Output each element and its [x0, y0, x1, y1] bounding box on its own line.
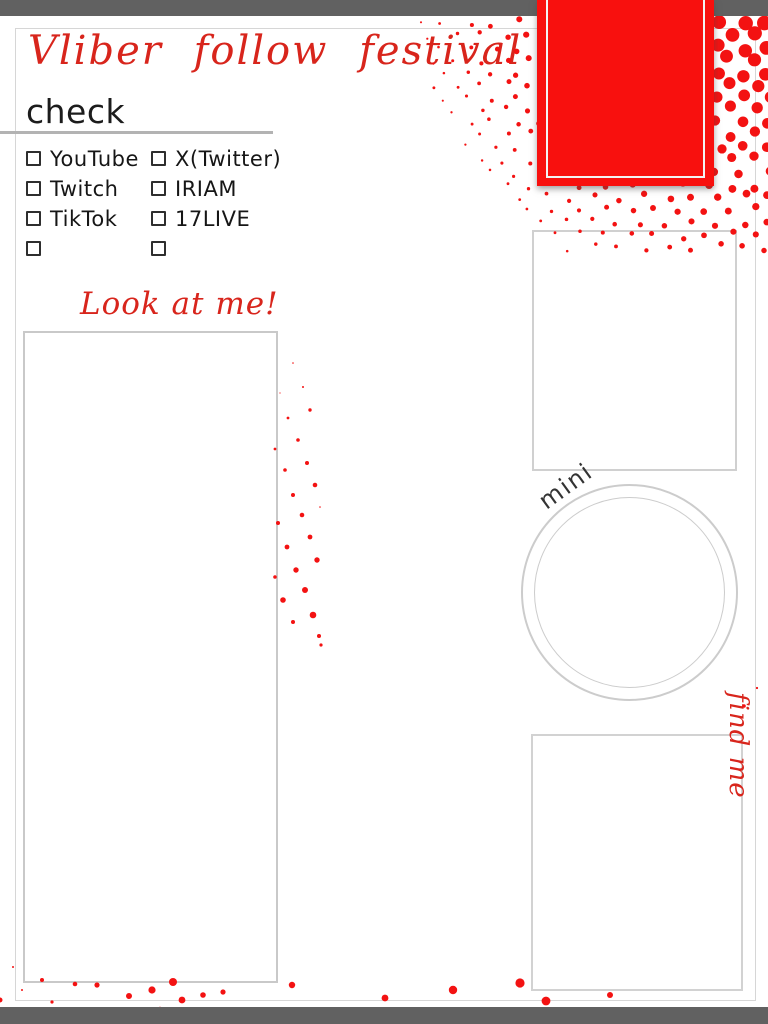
bottom-gray-bar — [0, 1007, 768, 1024]
photo-frame-top-right — [532, 230, 737, 471]
mini-photo-circle-inner — [534, 497, 725, 688]
check-heading: check — [26, 92, 125, 131]
main-photo-frame — [23, 331, 278, 983]
check-item-blank-right — [151, 237, 281, 267]
check-label-youtube: YouTube — [50, 147, 139, 171]
check-label-x-twitter: X(Twitter) — [175, 147, 281, 171]
checkbox-blank-right[interactable] — [151, 241, 166, 256]
red-card — [537, 0, 714, 186]
red-card-inner-border — [546, 0, 705, 178]
check-item-x-twitter: X(Twitter) — [151, 147, 281, 177]
page-title: Vliber follow festival — [28, 28, 522, 74]
find-me-caption: find me — [723, 692, 753, 799]
checkbox-x-twitter[interactable] — [151, 151, 166, 166]
photo-frame-bottom-right — [531, 734, 743, 991]
check-label-tiktok: TikTok — [50, 207, 117, 231]
check-item-iriam: IRIAM — [151, 177, 281, 207]
checkbox-iriam[interactable] — [151, 181, 166, 196]
look-at-me-caption: Look at me! — [80, 286, 279, 322]
check-item-twitch: Twitch — [26, 177, 151, 207]
check-item-blank-left — [26, 237, 151, 267]
checkbox-blank-left[interactable] — [26, 241, 41, 256]
check-label-twitch: Twitch — [50, 177, 118, 201]
check-label-iriam: IRIAM — [175, 177, 237, 201]
checkbox-youtube[interactable] — [26, 151, 41, 166]
checkbox-twitch[interactable] — [26, 181, 41, 196]
platform-checklist: YouTube Twitch TikTok X(Twitter) IRIAM 1… — [26, 147, 281, 267]
check-item-youtube: YouTube — [26, 147, 151, 177]
heading-underline — [0, 131, 273, 134]
check-item-tiktok: TikTok — [26, 207, 151, 237]
checkbox-17live[interactable] — [151, 211, 166, 226]
check-label-17live: 17LIVE — [175, 207, 250, 231]
check-item-17live: 17LIVE — [151, 207, 281, 237]
checkbox-tiktok[interactable] — [26, 211, 41, 226]
mini-photo-circle — [521, 484, 738, 701]
